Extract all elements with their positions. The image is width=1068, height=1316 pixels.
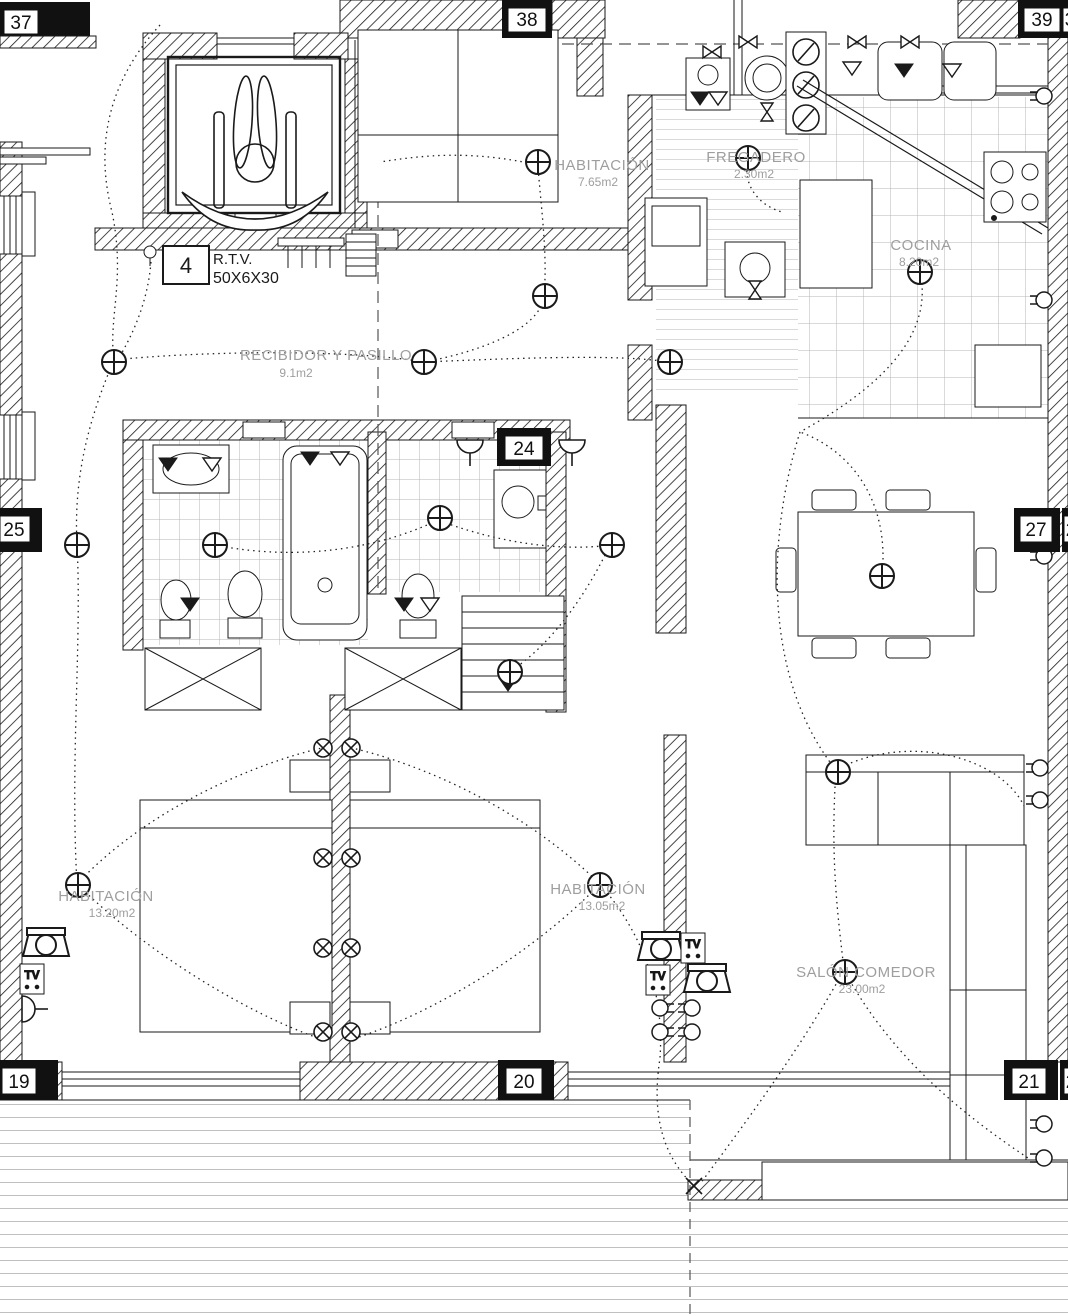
room-label-habitacion-left: HABITACIÓN <box>58 888 154 905</box>
rtv-size-label: 50X6X30 <box>213 270 279 287</box>
marker-25: 25 <box>0 508 42 552</box>
marker-38: 38 <box>502 0 552 38</box>
ceiling-light-icon <box>498 660 522 684</box>
ceiling-light-icon <box>600 533 624 557</box>
room-label-habitacion-mid: HABITACIÓN <box>550 881 646 898</box>
svg-text:25: 25 <box>3 520 24 541</box>
bathtub-icon <box>283 446 367 640</box>
tv-outlet-icon: TV <box>681 933 705 963</box>
ceiling-light-icon <box>65 533 89 557</box>
floor-plan-drawing: TV TV TV HABITACIÓN 7.65m2 FREGADERO 2.3… <box>0 0 1068 1316</box>
fridge <box>800 180 872 288</box>
phone-outlet-icon <box>638 932 684 960</box>
marker-19: 19 <box>0 1060 58 1100</box>
room-area: 23.00m2 <box>839 982 886 996</box>
room-label-fregadero: FREGADERO <box>706 149 806 166</box>
tv-label: TV <box>650 969 665 983</box>
room-area: 8.20m2 <box>899 255 939 269</box>
tv-outlet-icon: TV <box>20 964 44 994</box>
room-area: 7.65m2 <box>578 175 618 189</box>
ceiling-light-icon <box>658 350 682 374</box>
marker-4-number: 4 <box>180 253 192 278</box>
bed-double-top <box>358 30 558 202</box>
marker-24: 24 <box>497 428 551 466</box>
marker-39: 39 3 <box>1018 0 1068 38</box>
rtv-label: R.T.V. <box>213 251 252 268</box>
tv-label: TV <box>24 968 39 982</box>
room-label-salon: SALÓN COMEDOR <box>796 964 936 981</box>
room-area: 13.05m2 <box>579 899 626 913</box>
marker-20: 20 <box>498 1060 554 1100</box>
ceiling-light-icon <box>526 150 550 174</box>
room-label-habitacion-top: HABITACIÓN <box>554 157 650 174</box>
marker-27: 27 2 <box>1014 508 1068 552</box>
toilet-icon <box>228 571 262 638</box>
counter-unit <box>975 345 1041 407</box>
ceiling-light-icon <box>412 350 436 374</box>
svg-text:24: 24 <box>513 439 535 460</box>
svg-text:19: 19 <box>8 1072 29 1093</box>
room-label-recibidor: RECIBIDOR Y PASILLO <box>240 347 412 364</box>
ceiling-light-icon <box>826 760 850 784</box>
ceiling-light-icon <box>203 533 227 557</box>
svg-text:37: 37 <box>10 13 31 34</box>
phone-outlet-icon <box>684 964 730 992</box>
svg-text:21: 21 <box>1018 1072 1039 1093</box>
svg-text:39: 39 <box>1031 10 1052 31</box>
room-label-cocina: COCINA <box>890 237 951 254</box>
svg-text:27: 27 <box>1025 520 1046 541</box>
ceiling-light-icon <box>102 350 126 374</box>
svg-text:20: 20 <box>513 1072 534 1093</box>
tv-label: TV <box>685 937 700 951</box>
switch-icon <box>144 246 156 258</box>
stove-icon <box>984 152 1046 222</box>
marker-37: 37 <box>0 2 96 48</box>
floor-plan-sheet: TV TV TV HABITACIÓN 7.65m2 FREGADERO 2.3… <box>0 0 1068 1316</box>
phone-outlet-icon <box>23 928 69 956</box>
ceiling-light-icon <box>533 284 557 308</box>
vanity-sink-icon <box>494 470 546 548</box>
svg-text:38: 38 <box>516 10 537 31</box>
room-area: 2.30m2 <box>734 167 774 181</box>
room-area: 13.20m2 <box>89 906 136 920</box>
stairs-shelf <box>462 596 564 710</box>
room-area: 9.1m2 <box>279 366 313 380</box>
tv-outlet-icon: TV <box>646 965 670 995</box>
ceiling-light-icon <box>870 564 894 588</box>
ceiling-light-icon <box>428 506 452 530</box>
